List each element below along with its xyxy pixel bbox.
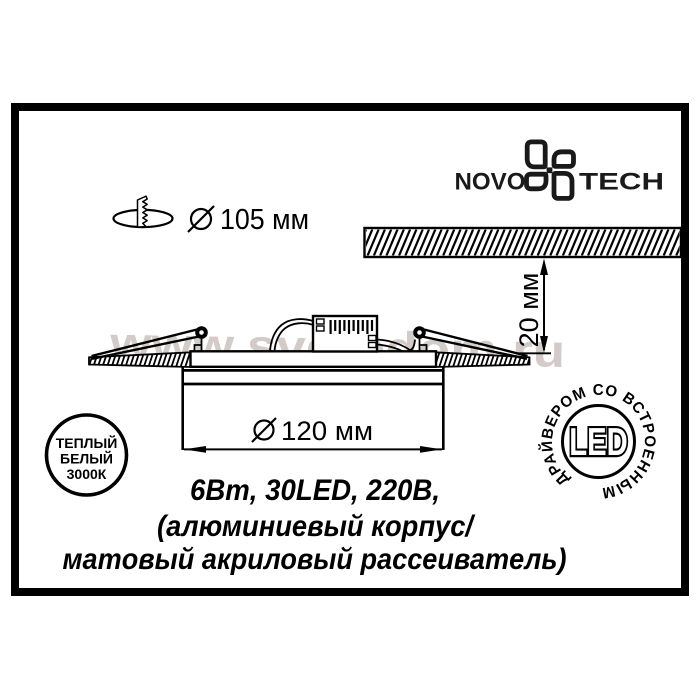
svg-text:3000К: 3000К bbox=[67, 466, 107, 482]
svg-text:TECH: TECH bbox=[579, 169, 664, 196]
svg-text:20 мм: 20 мм bbox=[514, 273, 544, 348]
svg-text:6Вm, 30LED, 220В,: 6Вm, 30LED, 220В, bbox=[190, 474, 440, 507]
svg-text:NOVO: NOVO bbox=[455, 169, 526, 196]
svg-text:маmовый акриловый рассеиваmель: маmовый акриловый рассеиваmель) bbox=[63, 543, 567, 576]
svg-text:(алюминиевый корпус/: (алюминиевый корпус/ bbox=[157, 510, 475, 543]
svg-text:БЕЛЫЙ: БЕЛЫЙ bbox=[60, 450, 113, 467]
svg-text:120 мм: 120 мм bbox=[281, 416, 373, 446]
svg-text:105 мм: 105 мм bbox=[220, 204, 309, 236]
svg-text:ТЕПЛЫЙ: ТЕПЛЫЙ bbox=[56, 434, 118, 451]
svg-text:LED: LED bbox=[569, 421, 627, 464]
